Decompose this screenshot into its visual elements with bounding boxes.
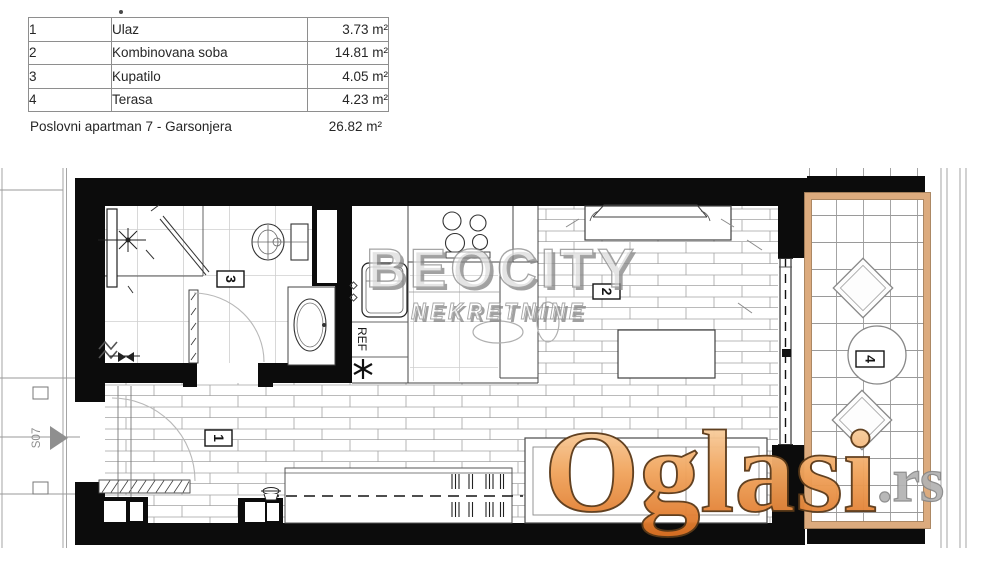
entrance-label: S07 — [31, 428, 43, 448]
column — [267, 503, 279, 521]
dining-table — [618, 330, 715, 378]
low-cabinet — [268, 468, 523, 523]
floor-plan-svg: S07 — [0, 0, 1000, 565]
column — [104, 501, 126, 522]
door-jamb — [33, 387, 48, 399]
window-handle — [782, 349, 791, 357]
floor-plan-page: 1 Ulaz 3.73 m² 2 Kombinovana soba 14.81 … — [0, 0, 1000, 565]
brand-watermark2-text: NEKRETNINE — [411, 298, 587, 324]
site-watermark-name: Oglasi — [544, 406, 877, 537]
door-jamb — [33, 482, 48, 494]
entrance-direction-arrow-icon — [50, 426, 68, 450]
room-label-4-text: 4 — [863, 355, 879, 363]
shaft-niche — [317, 210, 337, 283]
ref-label: REF — [355, 327, 369, 351]
site-watermark-tld: .rs — [877, 447, 944, 515]
column — [245, 502, 265, 522]
wardrobe-shelf — [99, 480, 190, 493]
toilet-icon — [252, 224, 308, 260]
room-label-3-text: 3 — [223, 275, 239, 283]
column — [130, 502, 143, 521]
bed — [585, 205, 731, 240]
brand-watermark-text: BEOCITY — [366, 237, 638, 299]
bathroom-tiles — [105, 206, 312, 363]
washbasin-icon — [288, 287, 335, 365]
room-label-1-text: 1 — [211, 434, 227, 442]
